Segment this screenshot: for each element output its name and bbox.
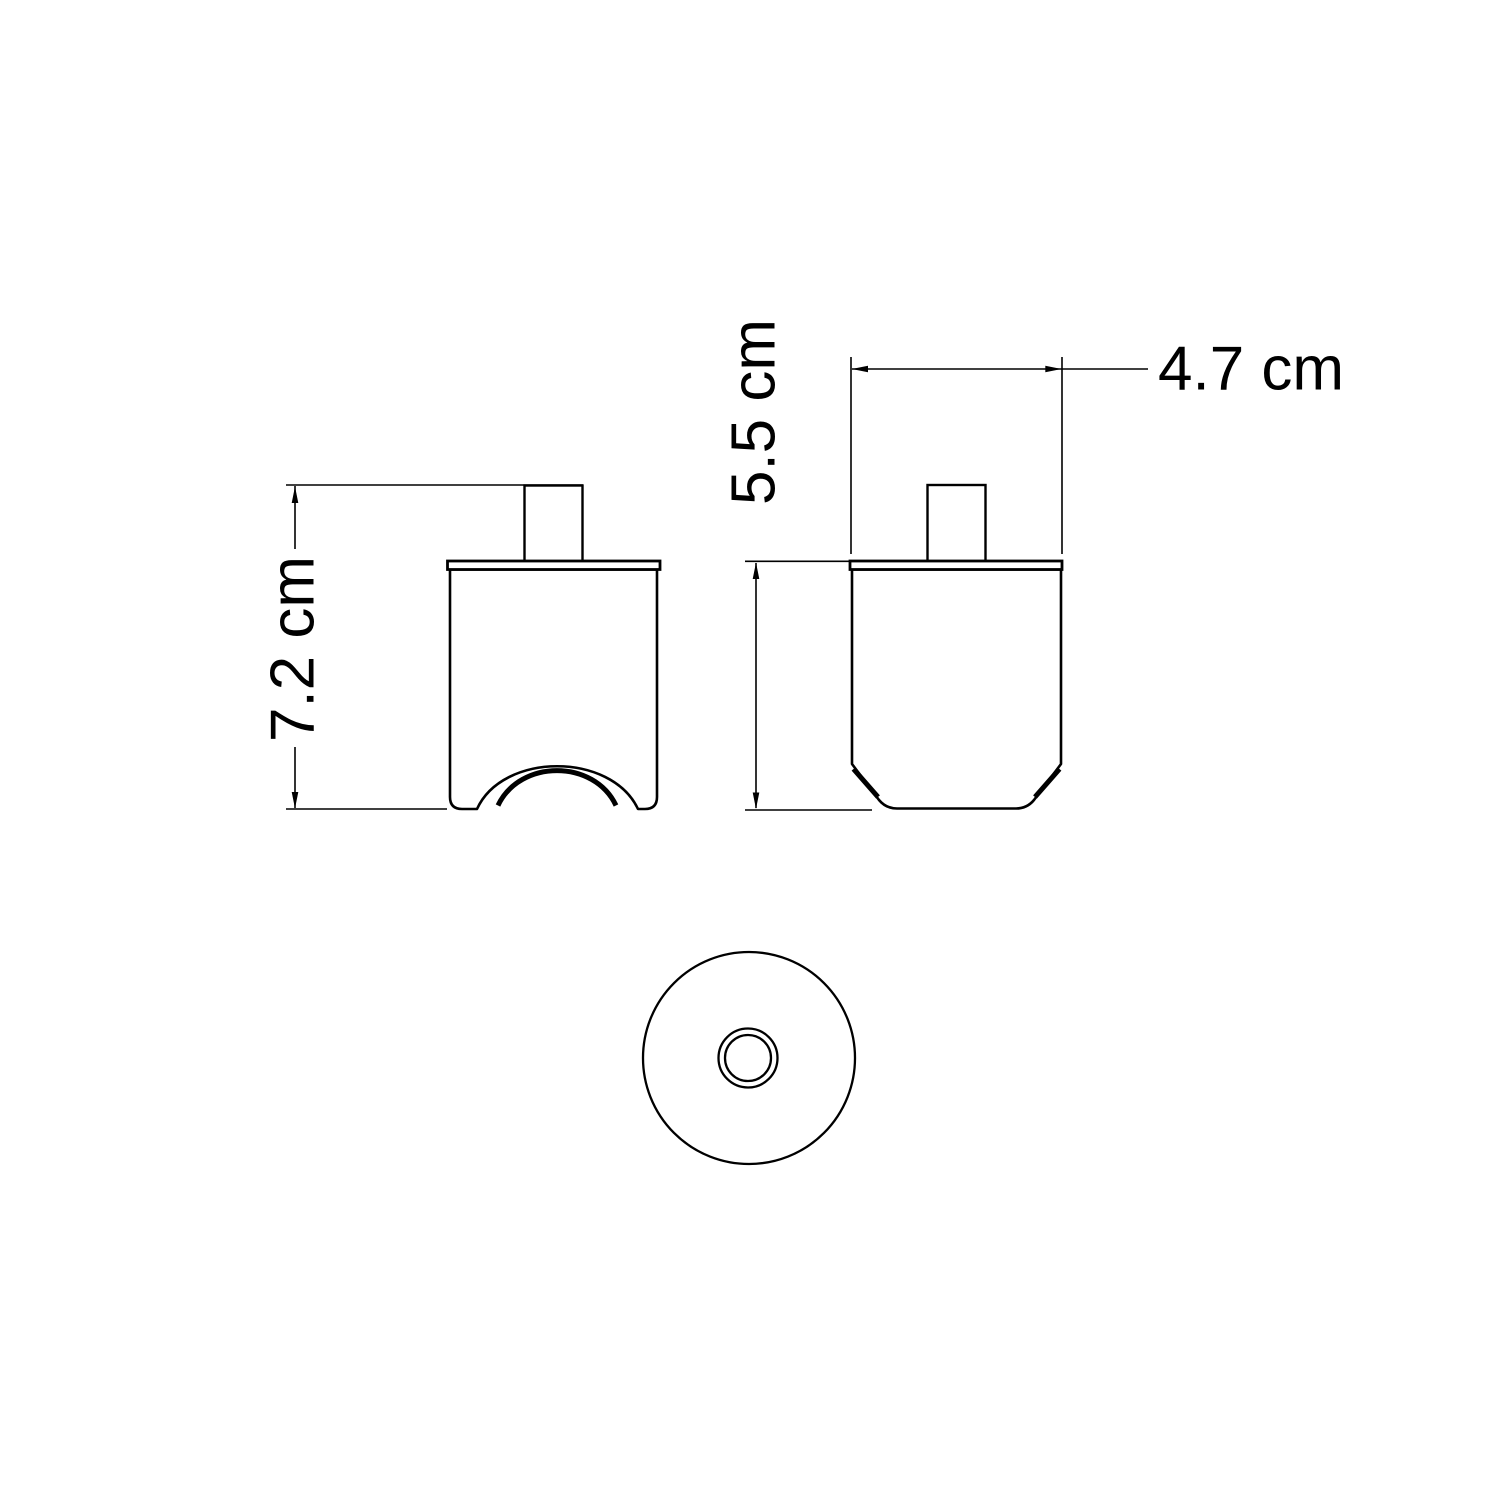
front-flange [448,561,661,570]
arrow-left-icon [852,366,868,373]
bottom-view [643,952,855,1164]
arrow-right-icon [1045,366,1061,373]
hub-ring-inner-circle [725,1035,771,1081]
arrow-up-icon [292,487,299,504]
front-view [448,486,661,810]
arrow-down-icon [753,793,760,810]
cable-grip-arc [498,771,616,806]
dimension-label-body-height: 5.5 cm [720,319,789,505]
dimension-label-width: 4.7 cm [1158,335,1344,404]
side-body-outline [852,570,1061,809]
side-view [850,485,1062,809]
side-stem [928,485,986,562]
hub-ring-outer-circle [719,1029,778,1088]
bottom-outer-circle [643,952,855,1164]
side-flange [850,561,1062,570]
front-stem [525,486,583,562]
arrow-up-icon [753,563,760,580]
arrow-down-icon [292,792,299,809]
technical-drawing-canvas: 7.2 cm 5.5 cm [0,0,1500,1500]
dimension-label-total-height: 7.2 cm [259,556,328,742]
technical-drawing-page: 7.2 cm 5.5 cm [0,0,1500,1500]
dimension-width: 4.7 cm [851,335,1344,555]
